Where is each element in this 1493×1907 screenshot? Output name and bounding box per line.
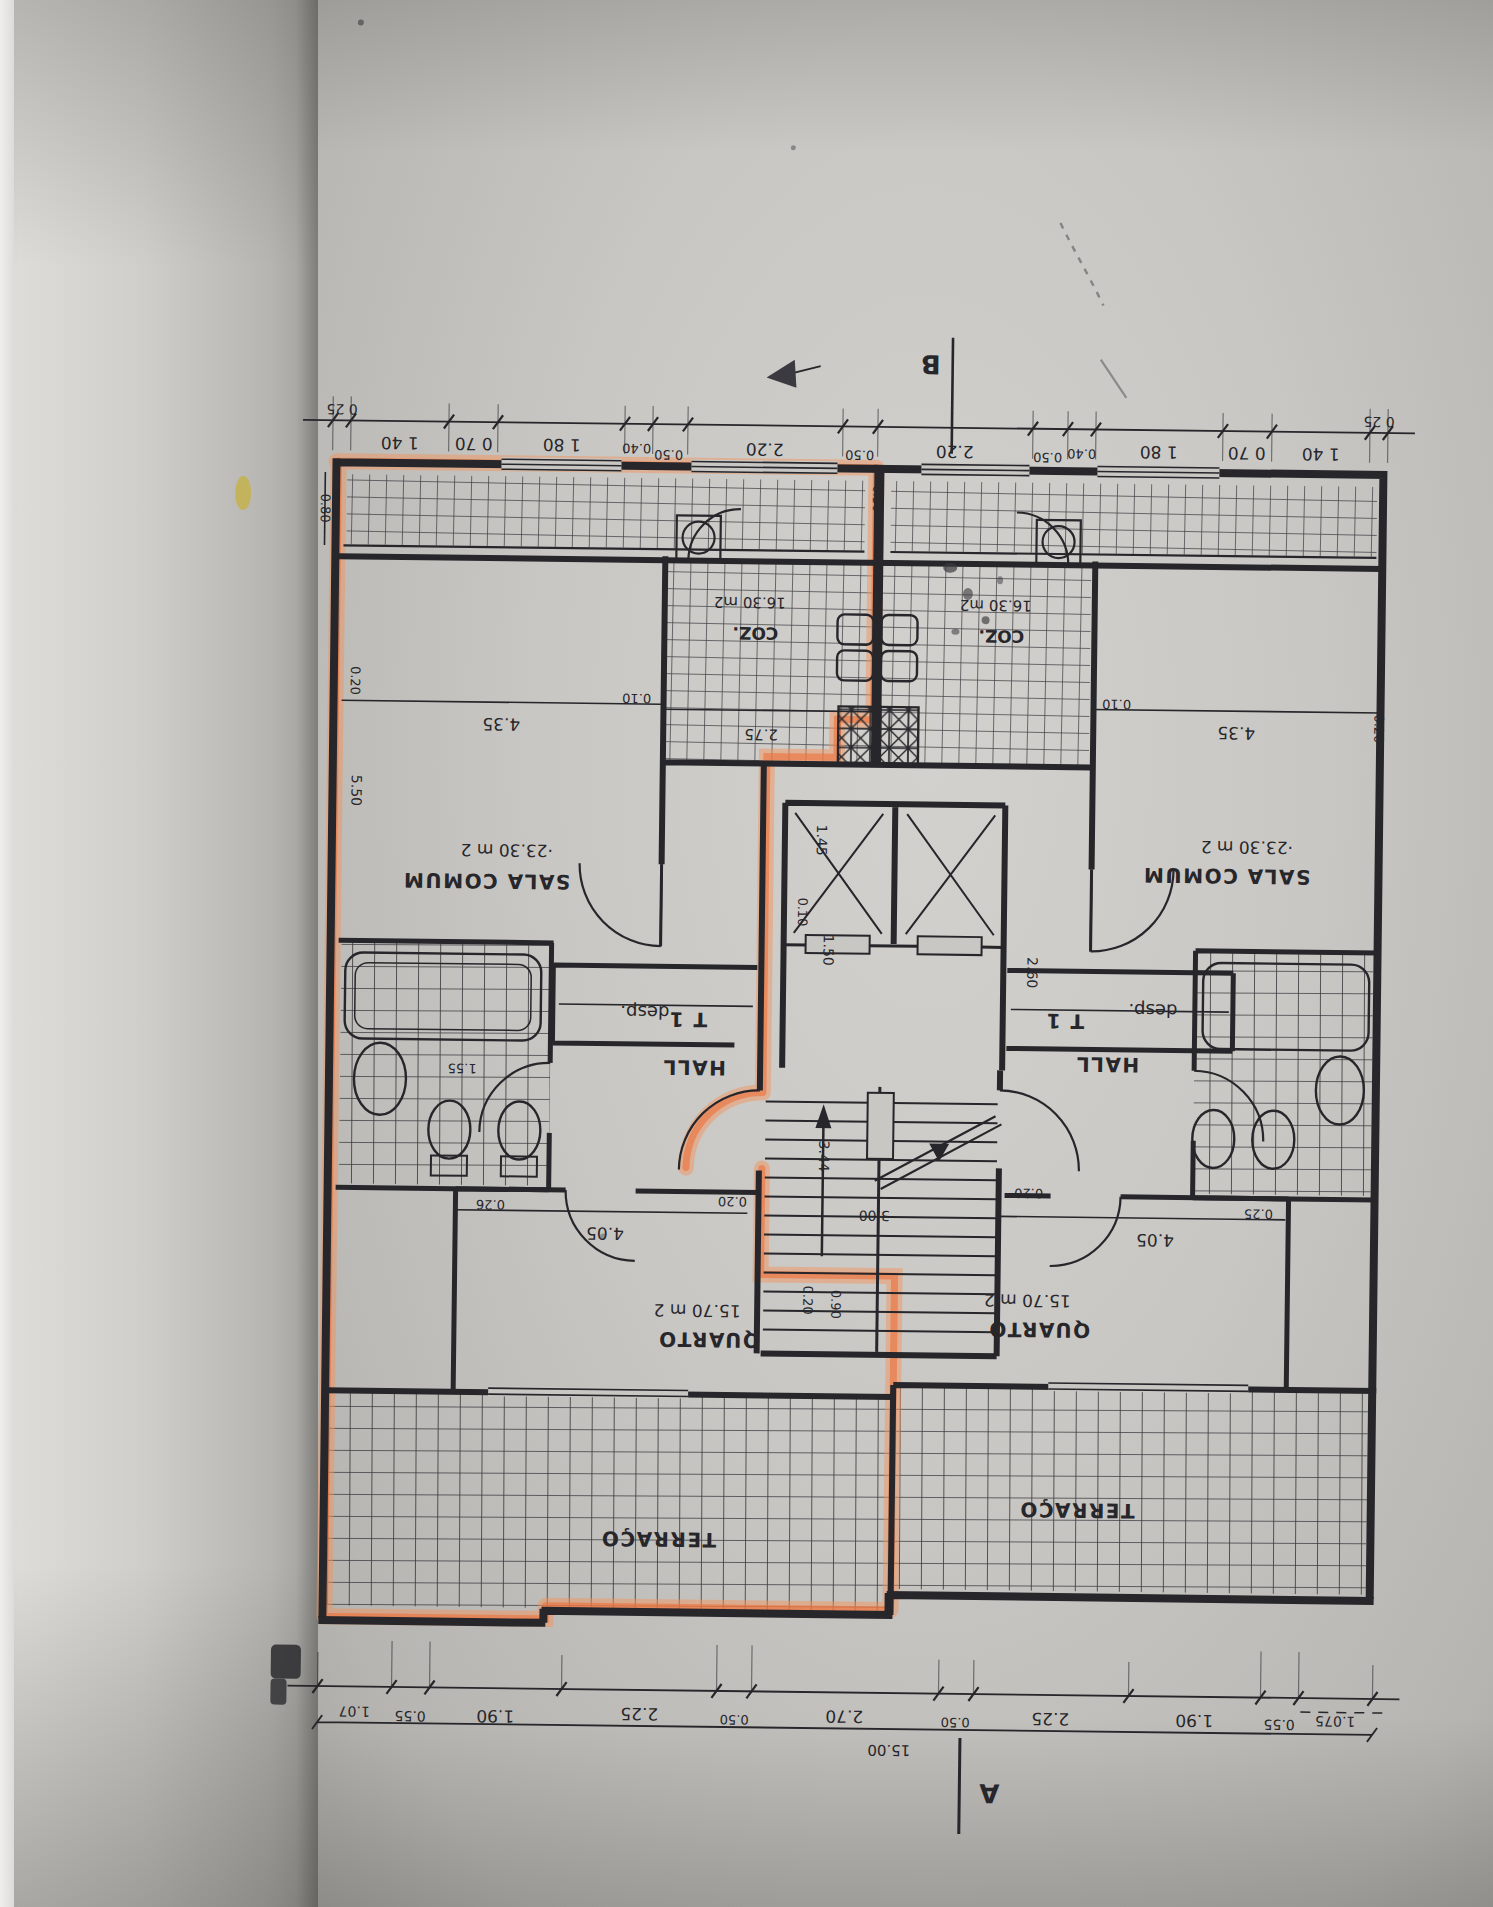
- dim-550-left-wall: 5.50: [348, 775, 364, 806]
- bathroom-dim: 1.55: [448, 1061, 477, 1076]
- top-dim: 0 25: [1363, 414, 1394, 430]
- dim-405-quarto-left: 4.05: [586, 1223, 624, 1243]
- dim-080-balcony: 0.80: [318, 494, 333, 523]
- room-label-kitchen-right: COZ.: [978, 626, 1024, 647]
- floor-plan-drawing: SALA COMUM ·23.30 m 2 SALA COMUM ·23.30 …: [0, 0, 1493, 1907]
- room-label-desp-right: desp.: [1128, 1000, 1177, 1022]
- top-dim: 0.50: [654, 447, 683, 462]
- bottom-dim: 0.50: [720, 1712, 749, 1727]
- north-arrow-icon: [766, 359, 796, 387]
- top-dim: 0 70: [455, 434, 493, 454]
- dim-344-stairs: 3.44: [816, 1141, 832, 1172]
- dim-010-lift: 0.10: [795, 897, 810, 926]
- bottom-dim: 1.075: [1315, 1713, 1355, 1729]
- unit-type-left: T 1: [668, 1007, 707, 1031]
- dim-405-quarto-right: 4.05: [1136, 1230, 1174, 1250]
- terrace-right-hatch: [894, 1385, 1368, 1595]
- room-area-sala-left: ·23.30 m 2: [461, 840, 554, 861]
- dim-010-right: 0.10: [1102, 697, 1131, 712]
- room-area-kitchen-left: 16.30 m2: [714, 593, 786, 612]
- bottom-dim: 1.07: [339, 1703, 370, 1719]
- dim-020-stairfoot: 0.20: [800, 1285, 815, 1314]
- section-letter-b: B: [921, 349, 941, 379]
- room-label-terraco-left: TERRAÇO: [600, 1527, 716, 1552]
- bathroom-right-hatch: [1193, 953, 1374, 1196]
- top-dim: 0.40: [1067, 446, 1096, 461]
- dim-010-left: 0.10: [622, 691, 651, 706]
- dim-435-left: 4.35: [482, 714, 520, 734]
- stair-newel: [867, 1093, 894, 1159]
- hatched-areas: [326, 474, 1380, 1618]
- dim-090-stairfoot: 0.90: [828, 1290, 843, 1319]
- ink-blob: [270, 1678, 286, 1704]
- room-label-hall-left: HALL: [662, 1055, 726, 1080]
- bottom-dim: 0.55: [394, 1708, 425, 1724]
- photo-of-floor-plan-page: SALA COMUM ·23.30 m 2 SALA COMUM ·23.30 …: [0, 0, 1493, 1907]
- scratch-mark: [1100, 360, 1126, 398]
- ink-blob: [271, 1644, 301, 1678]
- bottom-dim: 1.90: [1175, 1711, 1213, 1731]
- bottom-dim: 0.55: [1263, 1717, 1294, 1733]
- room-label-quarto-right: QUARTO: [988, 1317, 1091, 1342]
- dim-150-lobby: 1.50: [820, 935, 836, 966]
- room-area-quarto-right: 15.70 m 2: [984, 1290, 1071, 1311]
- room-area-sala-right: ·23.30 m 2: [1201, 837, 1294, 858]
- dim-030-party: 0.30: [870, 485, 884, 512]
- section-marker-a: A: [959, 1738, 1000, 1834]
- top-dim: 2.20: [746, 439, 784, 459]
- dim-020-left-wall: 0.20: [348, 666, 363, 695]
- bottom-dim: 2.70: [825, 1706, 863, 1726]
- vent-shaft-icon: [838, 706, 877, 764]
- scratch-mark: [1059, 223, 1104, 306]
- dim-300-stairs: 3.00: [859, 1208, 890, 1224]
- unit-type-right: T 1: [1045, 1009, 1084, 1033]
- room-label-sala-right: SALA COMUM: [1142, 863, 1310, 889]
- dim-026-quarto-left: 0.26: [476, 1197, 505, 1212]
- speck: [791, 145, 796, 150]
- room-label-hall-right: HALL: [1075, 1052, 1139, 1077]
- top-dim: 0.40: [622, 441, 651, 456]
- room-label-quarto-left: QUARTO: [658, 1327, 761, 1352]
- room-label-sala-left: SALA COMUM: [402, 868, 570, 894]
- service-balcony-left-hatch: [346, 474, 865, 550]
- top-dim: 1 80: [543, 435, 581, 455]
- dim-435-right: 4.35: [1217, 723, 1255, 743]
- top-dim: 0.50: [845, 447, 874, 462]
- dim-020-stairwall: 0.20: [1014, 1186, 1043, 1201]
- top-dim: 0.50: [1033, 450, 1062, 465]
- dim-275-kitchen: 2.75: [744, 725, 778, 743]
- overall-dim: 15.00: [867, 1741, 910, 1760]
- bottom-dim: 2.25: [1031, 1709, 1069, 1729]
- room-label-desp-left: desp.: [620, 1002, 669, 1024]
- dim-020-quarto-left: 0.20: [718, 1194, 747, 1209]
- top-dim: 1 40: [381, 433, 419, 453]
- stair-direction-arrow: [815, 1104, 831, 1128]
- top-dim: 0 70: [1228, 443, 1266, 463]
- yellow-stain: [235, 476, 251, 510]
- room-label-kitchen-left: COZ.: [732, 623, 778, 644]
- dim-260-right-door: 2.60: [1024, 957, 1040, 988]
- vent-shaft-icon: [880, 707, 919, 765]
- bottom-dim: 2.25: [620, 1704, 658, 1724]
- room-area-quarto-left: 15.70 m 2: [654, 1300, 741, 1321]
- top-dim: 0 25: [326, 401, 357, 417]
- service-balcony-right-hatch: [890, 481, 1377, 557]
- dim-020-right-wall: 0.20: [1371, 714, 1386, 743]
- top-dim: 2.20: [936, 442, 974, 462]
- dim-145-lift: 1.45: [814, 824, 830, 855]
- top-dim: 1 40: [1302, 444, 1340, 464]
- bottom-dim: 0.50: [941, 1715, 970, 1730]
- dim-025-quarto-right: 0.25: [1244, 1206, 1273, 1221]
- bottom-dim: 1.90: [476, 1706, 514, 1726]
- section-letter-a: A: [979, 1778, 999, 1808]
- top-dim: 1 80: [1140, 442, 1178, 462]
- bathroom-left-hatch: [339, 942, 552, 1186]
- bottom-dimension-chain: 1.07 0.55 1.90 2.25 0.50 2.70 0.50 2.25 …: [287, 1640, 1400, 1766]
- room-label-terraco-right: TERRAÇO: [1019, 1498, 1135, 1523]
- terrace-left-hatch: [326, 1390, 892, 1612]
- section-marker-b: B: [766, 335, 953, 453]
- cut-line-arrow: [929, 1143, 949, 1161]
- speck: [358, 19, 364, 25]
